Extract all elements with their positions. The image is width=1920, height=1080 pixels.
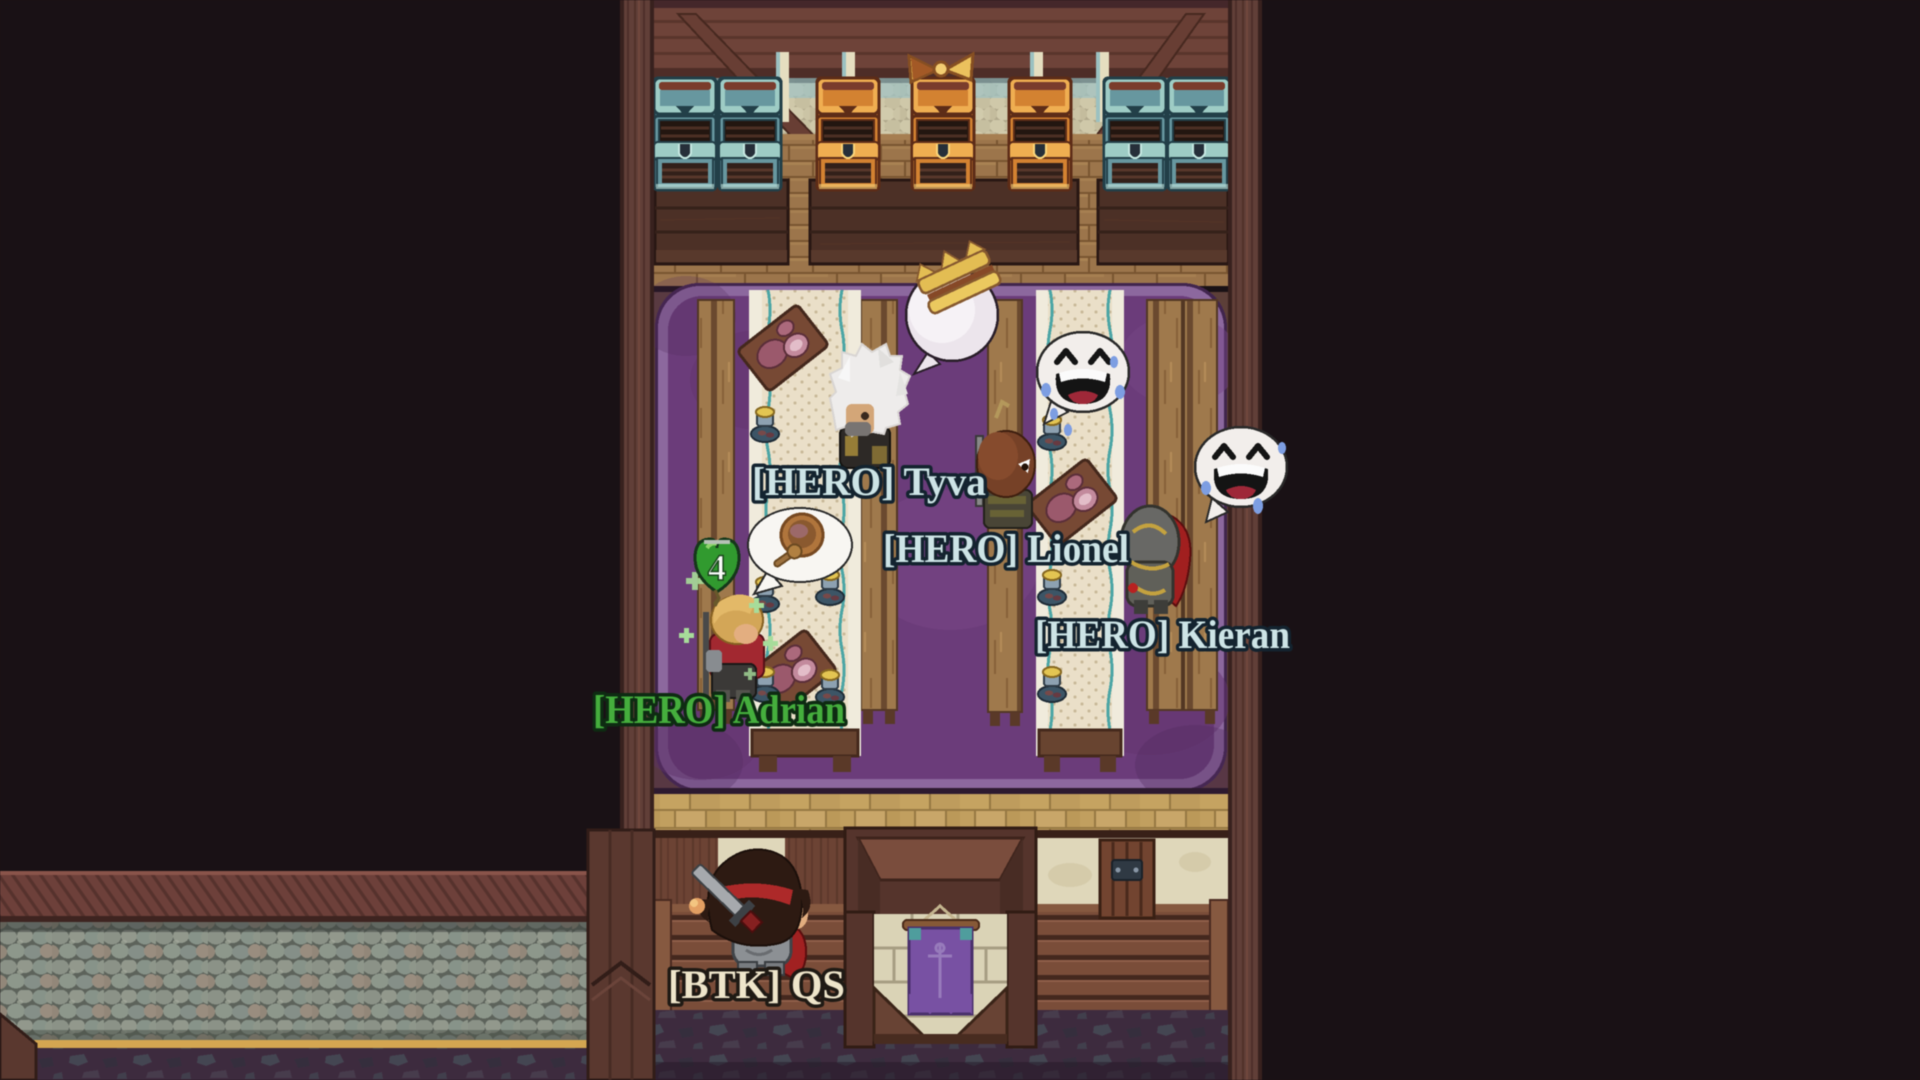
svg-text:[HERO] Kieran: [HERO] Kieran bbox=[1035, 612, 1290, 657]
svg-text:[HERO] Tyva: [HERO] Tyva bbox=[752, 459, 986, 504]
svg-text:[HERO] Adrian: [HERO] Adrian bbox=[593, 687, 845, 732]
svg-text:[HERO] Lionel: [HERO] Lionel bbox=[883, 526, 1129, 571]
svg-text:4: 4 bbox=[708, 548, 727, 589]
svg-text:[BTK] QS: [BTK] QS bbox=[668, 962, 845, 1007]
